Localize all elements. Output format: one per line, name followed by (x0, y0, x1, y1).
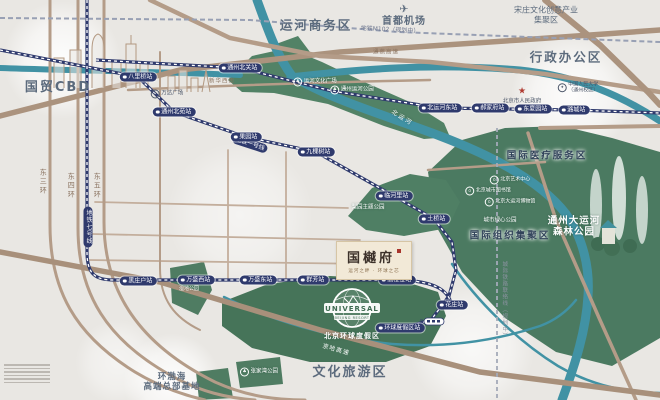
station-jiukeshu: 九棵树站 (298, 148, 335, 157)
building-icon: ⌂ (151, 90, 160, 99)
station-dongxiayuan: 东夏园站 (515, 105, 552, 114)
station-tongzhoubeiguan: 通州北关站 (219, 64, 262, 73)
station-lucheng: 潞城站 (559, 106, 590, 115)
universal-banner-text: BEIJING RESORT (334, 316, 369, 320)
station-wanshengdong: 万盛东站 (240, 276, 277, 285)
building-icon: ⌂ (465, 187, 474, 196)
location-map: UNIVERSAL BEIJING RESORT 国贸CBD 运河商务区 宋庄文… (0, 0, 660, 400)
station-baliqiao: 八里桥站 (120, 73, 157, 82)
station-universal-resort: 环球度假区站 (376, 324, 425, 333)
canal-museum-poi: ⌂ 北京大运河博物馆 (485, 198, 536, 207)
station-guoyuan: 果园站 (231, 133, 262, 142)
map-canvas: UNIVERSAL BEIJING RESORT (0, 0, 660, 400)
park-icon: ♣ (293, 78, 302, 87)
station-beiyunhedong: 北运河东站 (419, 104, 462, 113)
liyuan-park-shape (348, 174, 460, 236)
station-linheli: 临河里站 (376, 192, 413, 201)
red-seal-icon (397, 249, 401, 253)
station-tuqiao: 土桥站 (419, 215, 450, 224)
wanda-plaza-poi: ⌂ 万达广场 (151, 90, 184, 99)
station-qunfang: 群芳站 (298, 276, 329, 285)
station-tongzhoubeiyuan: 通州北苑站 (153, 108, 196, 117)
school-icon: ✦ (558, 84, 567, 93)
station-wanshengxi: 万盛西站 (178, 276, 215, 285)
building-icon: ⌂ (490, 176, 499, 185)
park-icon: ♣ (330, 86, 339, 95)
park-icon: ♣ (240, 368, 249, 377)
metro-line7-label: 地铁七号线 (84, 207, 93, 248)
building-icon: ⌂ (485, 198, 494, 207)
station-heizhuanghu: 黑庄户站 (120, 277, 157, 286)
yunhe-park-poi: ♣ 通州运河公园 (330, 86, 374, 95)
art-center-poi: ⌂ 北京艺术中心 (490, 176, 531, 185)
renmin-university-poi: ✦ 中国人民大学 （通州校区） (558, 82, 599, 94)
disclaimer-text-illegible (4, 364, 50, 383)
zhangjiawan-park-poi: ♣ 张家湾公园 (240, 368, 278, 377)
station-haojiafu: 郝家府站 (472, 104, 509, 113)
universal-arc-text: UNIVERSAL (325, 305, 379, 313)
station-huazhuang: 花庄站 (437, 301, 468, 310)
project-tagline: 运河之畔 · 环球之芯 (348, 268, 399, 274)
project-name: 国樾府 (347, 247, 401, 266)
city-library-poi: ⌂ 北京城市图书馆 (465, 187, 511, 196)
project-logo-card: 国樾府 运河之畔 · 环球之芯 (336, 241, 412, 280)
